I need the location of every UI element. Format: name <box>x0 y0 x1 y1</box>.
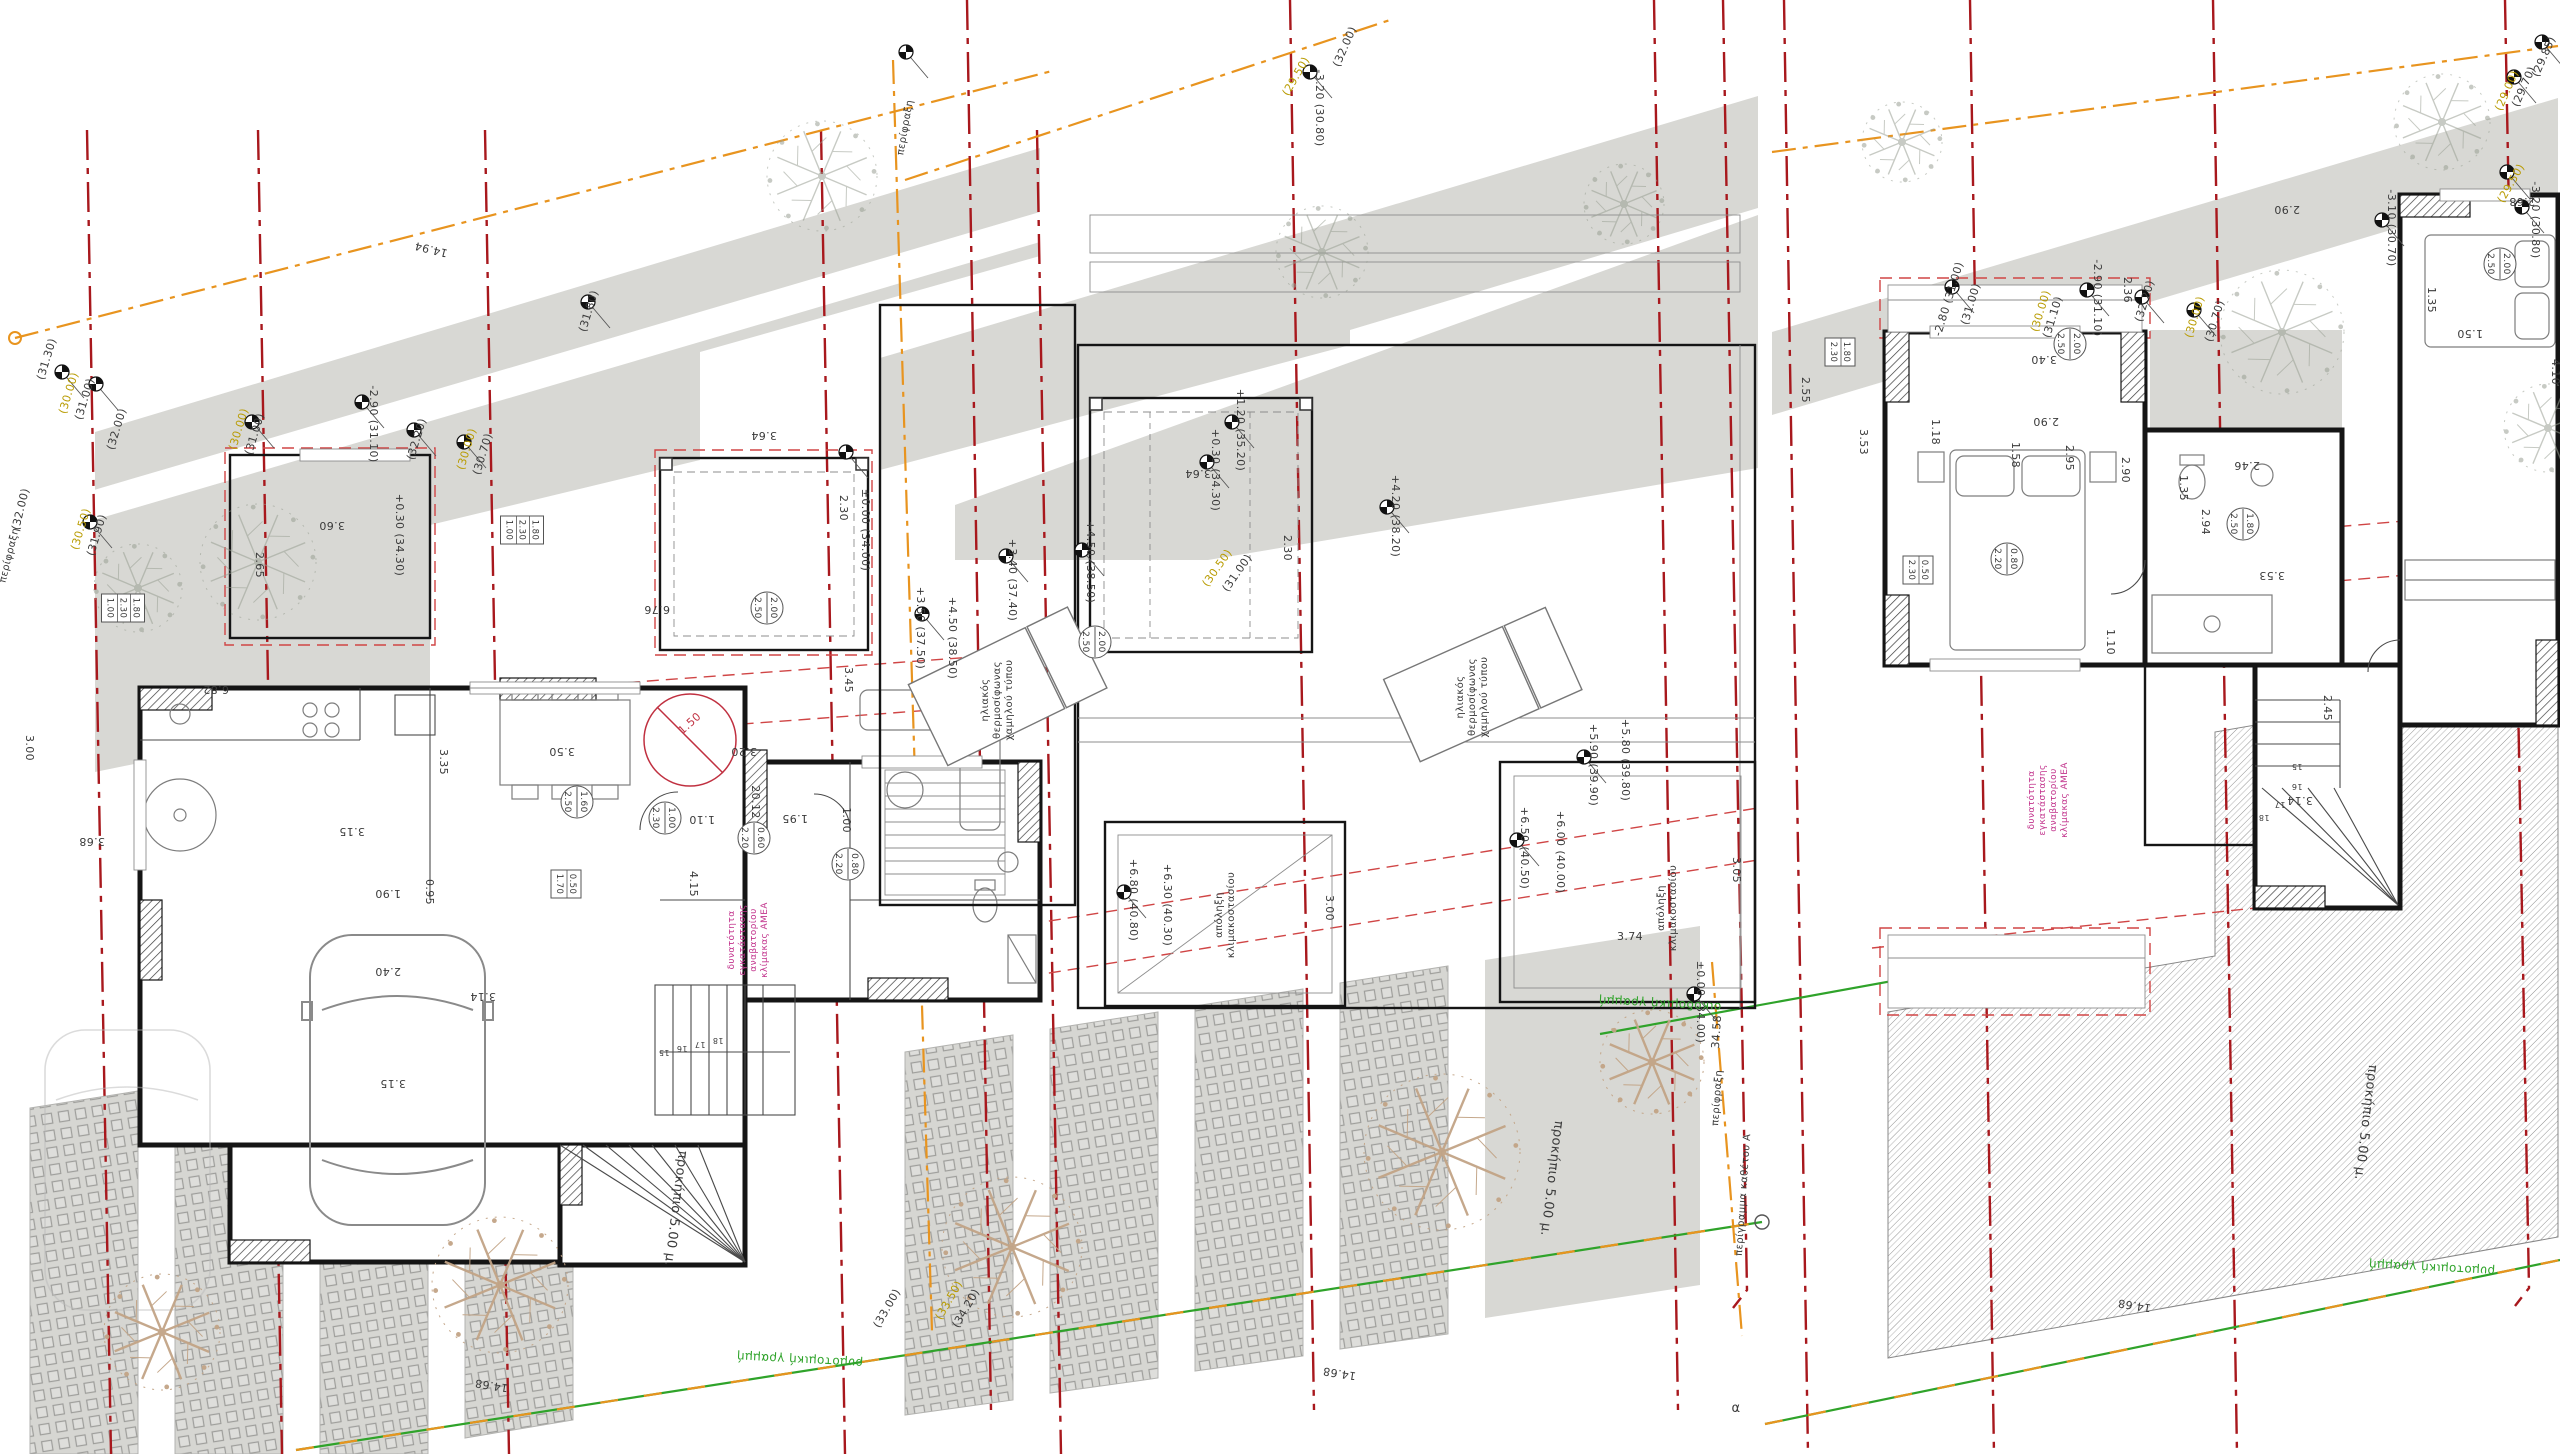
note-line: εγκατάστασης <box>738 904 748 975</box>
window-spec-circle: 2.002.50 <box>2054 328 2086 360</box>
dimension-label: -2.90 (31.10) <box>2091 259 2104 336</box>
door-spec-box: 1.802.30 <box>1825 338 1855 366</box>
dimension-label: +6.30 (40.30) <box>1161 864 1174 946</box>
window-spec-circle: 0.602.20 <box>738 822 770 854</box>
tile-strip <box>1050 1012 1158 1393</box>
dimension-label: ρυμοτομική γραμμή <box>2368 1258 2495 1279</box>
spot-elevation-marker <box>899 45 928 78</box>
door-spec-value: 0.50 <box>1919 560 1929 581</box>
door-spec-value: 2.30 <box>517 520 527 541</box>
note-line: κλίμακας ΑΜΕΑ <box>2060 762 2070 838</box>
dimension-label: 1.10 <box>689 813 715 826</box>
dimension-label: 0.95 <box>423 879 436 905</box>
dimension-label: (32.00) <box>1330 24 1359 68</box>
window-spec-circle: 1.602.50 <box>561 786 593 818</box>
dimension-label: 6.82 <box>203 683 229 696</box>
dimension-label: +6.50 (40.50) <box>1518 807 1531 889</box>
window-height: 2.00 <box>1096 631 1106 653</box>
dimension-label: 3.45 <box>842 667 855 693</box>
dimension-label: 1.35 <box>2177 475 2190 501</box>
dimension-label: 3.64 <box>751 429 777 442</box>
dimension-label: 3.68 <box>79 835 105 848</box>
dimension-label: -3.20 (30.80) <box>2529 181 2542 258</box>
dimension-label: α <box>1732 1401 1741 1416</box>
window-spec-circle: 2.002.50 <box>2484 248 2516 280</box>
note-line: θερμοσίφωνας <box>991 661 1003 739</box>
door-spec-value: 1.80 <box>131 598 141 619</box>
dimension-label: 2.40 <box>375 965 401 978</box>
dimension-label: -3.20 (30.80) <box>1313 69 1326 146</box>
door-spec-box: 1.802.301.00 <box>102 594 145 622</box>
dimension-label: 3.74 <box>1617 930 1643 943</box>
bedroom-1 <box>1885 332 2145 665</box>
note-line: χαμηλού τύπου <box>1478 656 1490 737</box>
dimension-label: 3.14 <box>2287 794 2313 807</box>
dimension-label: 3.14 <box>470 990 496 1003</box>
door-spec-value: 1.80 <box>530 520 540 541</box>
dimension-label: περίγραμμα καθέτου Α <box>1733 1133 1754 1256</box>
dimension-label: 3.53 <box>1857 429 1870 455</box>
door-spec-box: 0.502.30 <box>1903 556 1933 584</box>
note-line: δυνατότητα <box>726 910 737 969</box>
dimension-label: +4.20 (38.20) <box>1389 475 1402 557</box>
dimension-label: 1.35 <box>2425 287 2438 313</box>
porch-post <box>856 458 868 470</box>
window-height: 0.80 <box>849 853 859 875</box>
dimension-label: 2.68 <box>2509 195 2535 208</box>
stair-exit-1 <box>1105 822 1345 1006</box>
dimension-label: 3.60 <box>319 519 345 532</box>
note-line: απόληξη <box>1655 885 1667 931</box>
window-height: 0.60 <box>755 827 765 849</box>
dimension-label: +5.80 (39.80) <box>1619 719 1632 801</box>
window-height: 2.00 <box>2501 253 2511 275</box>
dimension-label: +6.80 (40.80) <box>1127 859 1140 941</box>
dimension-label: (32.00) <box>9 487 32 532</box>
dimension-label: 1.90 <box>375 887 401 900</box>
dimension-label: +4.50 (38.50) <box>946 597 959 679</box>
note-line: δυνατότητα <box>2026 770 2037 829</box>
door-spec-value: 1.70 <box>554 874 564 895</box>
dimension-label: 15 <box>2292 762 2303 771</box>
gridline <box>1784 0 1808 1454</box>
dimension-label: 1.10 <box>2104 629 2117 655</box>
window-sill: 2.50 <box>2055 333 2065 355</box>
door-spec-value: 0.50 <box>567 874 577 895</box>
dimension-label: +4.50 (38.50) <box>1084 521 1097 603</box>
note-text: δυνατότηταεγκατάστασηςαναβατορίουκλίμακα… <box>2026 762 2070 838</box>
window-spec-circle: 1.802.50 <box>2227 508 2259 540</box>
note-line: απόληξη <box>1213 892 1225 938</box>
dimension-label: 1.95 <box>782 812 808 825</box>
door-spec-value: 1.00 <box>504 520 514 541</box>
dimension-label: -2.90 (31.10) <box>367 385 380 462</box>
dimension-label: 16 <box>2292 782 2303 791</box>
plan-sheet: Greek architectural drawing sheet with t… <box>0 0 2560 1454</box>
door-spec-value: 2.30 <box>1906 560 1916 581</box>
window-sill: 2.50 <box>562 791 572 813</box>
dimension-label: 16 <box>677 1044 688 1053</box>
dimension-label: 18 <box>713 1036 724 1045</box>
window-spec-circle: 1.002.30 <box>649 802 681 834</box>
dimension-label: 2.30 <box>1281 535 1294 561</box>
tile-strip <box>1340 966 1448 1349</box>
window-height: 1.00 <box>666 807 676 829</box>
door-spec-box: 0.501.70 <box>551 870 581 898</box>
dimension-label: +3.50 (37.50) <box>914 587 927 669</box>
dimension-label: 3.05 <box>1730 857 1743 883</box>
dimension-label: 3.35 <box>437 749 450 775</box>
note-line: κλιμακοστασίου <box>1667 865 1679 951</box>
door-spec-value: 1.80 <box>1841 342 1851 363</box>
dimension-label: 14.68 <box>1322 1364 1357 1382</box>
dimension-label: 2.36 <box>2121 277 2134 303</box>
window-sill: 2.20 <box>833 853 843 875</box>
dimension-label: 4.10 <box>2549 359 2560 385</box>
dimension-label: 1.50 <box>2457 327 2483 340</box>
tile-strip <box>30 1091 138 1454</box>
dimension-label: +5.90 (39.90) <box>1587 724 1600 806</box>
dimension-label: 2.65 <box>253 552 266 578</box>
dimension-label: 3.15 <box>339 825 365 838</box>
window-spec-circle: 0.802.20 <box>1991 543 2023 575</box>
window-height: 0.80 <box>2008 548 2018 570</box>
dimension-label: 17 <box>2275 800 2286 809</box>
dimension-label: 1.00 <box>840 807 853 833</box>
architectural-drawing: Greek architectural drawing sheet with t… <box>0 0 2560 1454</box>
door-spec-value: 2.30 <box>118 598 128 619</box>
balcony-bottom <box>1888 935 2145 1008</box>
dimension-label: 3.64 <box>1185 467 1211 480</box>
dimension-label: 20.12 <box>749 785 762 819</box>
window-spec-circle: 0.802.20 <box>832 848 864 880</box>
porch-post <box>660 458 672 470</box>
dimension-label: περίφραξη <box>894 99 916 156</box>
dimension-label: ±0.00 (34.00) <box>859 489 872 571</box>
window-sill: 2.50 <box>752 597 762 619</box>
dimension-label: 3.50 <box>549 745 575 758</box>
dimension-label: 6.76 <box>644 603 670 616</box>
window-sill: 2.20 <box>1992 548 2002 570</box>
dimension-label: 3.00 <box>1323 895 1336 921</box>
window-spec-circle: 2.002.50 <box>751 592 783 624</box>
dimension-label: +6.00 (40.00) <box>1554 811 1567 893</box>
dimension-label: +3.40 (37.40) <box>1006 539 1019 621</box>
dimension-label: περίφραξη <box>0 527 22 584</box>
dimension-label: 34.58 <box>1709 1015 1724 1049</box>
dimension-label: 3.53 <box>2259 569 2285 582</box>
dimension-label: -3.10 (30.70) <box>2385 189 2398 266</box>
dimension-label: 2.90 <box>2274 203 2300 216</box>
note-line: ηλιακός <box>979 679 991 722</box>
building-outline <box>745 762 1040 1000</box>
tree <box>1862 102 1943 183</box>
dimension-label: 2.90 <box>2119 457 2132 483</box>
dimension-label: 3.40 <box>2031 353 2057 366</box>
dimension-label: 2.46 <box>2234 459 2260 472</box>
dimension-label: 2.30 <box>837 495 850 521</box>
window-sill: 2.50 <box>2228 513 2238 535</box>
door-spec-box: 1.802.301.00 <box>501 516 544 544</box>
dimension-label: 18 <box>2259 813 2270 822</box>
window-sill: 2.20 <box>739 827 749 849</box>
dimension-label: 2.95 <box>2063 445 2076 471</box>
window-height: 2.00 <box>768 597 778 619</box>
note-line: κλίμακας ΑΜΕΑ <box>760 902 770 978</box>
dimension-label: 3.15 <box>380 1077 406 1090</box>
dimension-label: (33.00) <box>871 1286 904 1330</box>
dimension-label: περίφραξη <box>1709 1069 1725 1126</box>
dimension-label: 2.45 <box>2321 695 2334 721</box>
dimension-label: 1.18 <box>1929 419 1942 445</box>
dimension-label: 4.15 <box>687 871 700 897</box>
dimension-label: 14.94 <box>413 239 449 260</box>
dimension-label: 1.58 <box>2009 442 2022 468</box>
dimension-label: 15 <box>659 1048 670 1057</box>
dimension-label: 3.20 <box>731 745 757 758</box>
dimension-label: 2.94 <box>2199 509 2212 535</box>
window-sill: 2.50 <box>1080 631 1090 653</box>
tile-strip <box>1195 989 1303 1371</box>
window-sill: 2.50 <box>2485 253 2495 275</box>
door-spec-value: 2.30 <box>1828 342 1838 363</box>
dimension-label: 17 <box>695 1040 706 1049</box>
dimension-label: 3.00 <box>23 735 36 761</box>
note-line: αναβατορίου <box>2049 768 2059 831</box>
window-height: 1.60 <box>578 791 588 813</box>
dimension-label: +0.30 (34.30) <box>393 494 406 576</box>
note-line: θερμοσίφωνας <box>1466 658 1478 736</box>
dimension-label: 2.90 <box>2033 415 2059 428</box>
note-line: ηλιακός <box>1454 676 1466 719</box>
dimension-label: +1.20 (35.20) <box>1234 389 1247 471</box>
window-spec-circle: 2.002.50 <box>1079 626 1111 658</box>
note-line: κλιμακοστασίου <box>1225 872 1237 958</box>
note-line: εγκατάστασης <box>2038 764 2048 835</box>
dimension-label: 2.55 <box>1799 377 1812 403</box>
window-sill: 2.30 <box>650 807 660 829</box>
note-line: χαμηλού τύπου <box>1003 659 1015 740</box>
window-height: 2.00 <box>2071 333 2081 355</box>
note-line: αναβατορίου <box>749 908 759 971</box>
window-height: 1.80 <box>2244 513 2254 535</box>
door-spec-value: 1.00 <box>105 598 115 619</box>
